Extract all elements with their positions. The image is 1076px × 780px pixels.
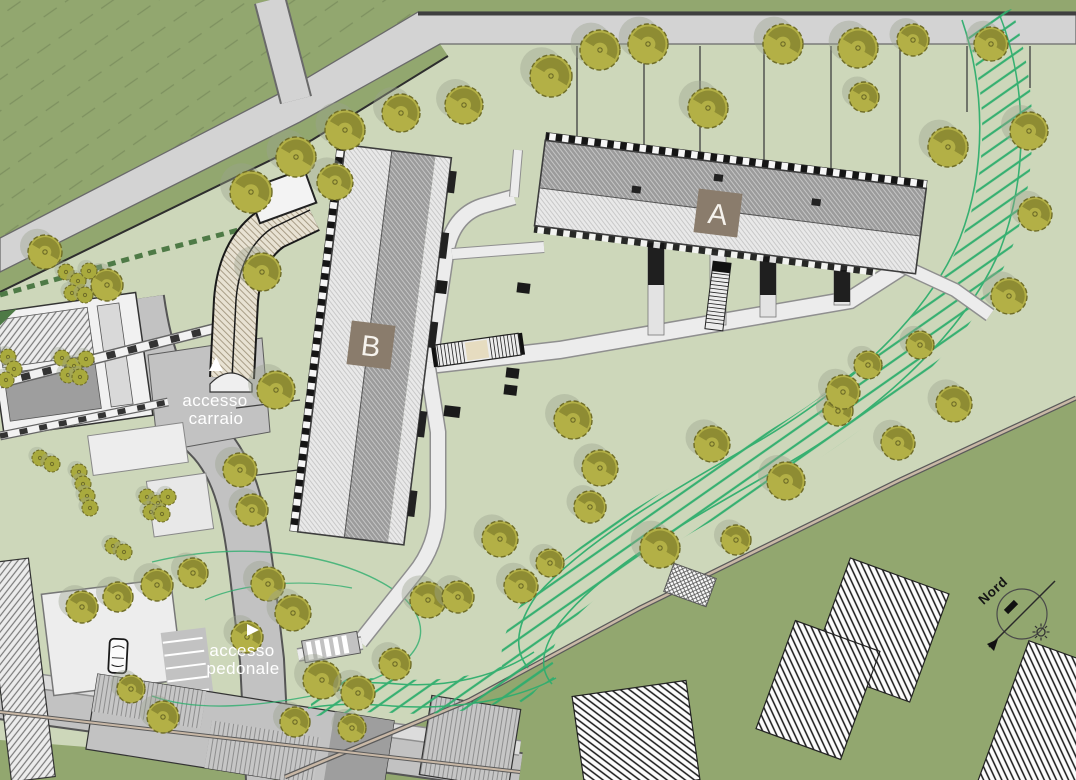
building-a-label: A xyxy=(693,188,742,237)
hatched-building-3 xyxy=(572,680,700,780)
car xyxy=(108,639,128,674)
site-plan-canvas: A B accesso carraio accesso pedonale Nor… xyxy=(0,0,1076,780)
building-b-letter: B xyxy=(359,330,382,364)
building-b-label: B xyxy=(346,320,395,369)
pedestrian-access-text-2: pedonale xyxy=(206,659,279,678)
vehicle-access-text-1: accesso xyxy=(182,391,247,410)
site-plan: A B accesso carraio accesso pedonale Nor… xyxy=(0,0,1076,780)
pedestrian-access-text-1: accesso xyxy=(209,641,274,660)
vehicle-access-text-2: carraio xyxy=(189,409,244,428)
terrain-top-strip xyxy=(418,0,1076,12)
